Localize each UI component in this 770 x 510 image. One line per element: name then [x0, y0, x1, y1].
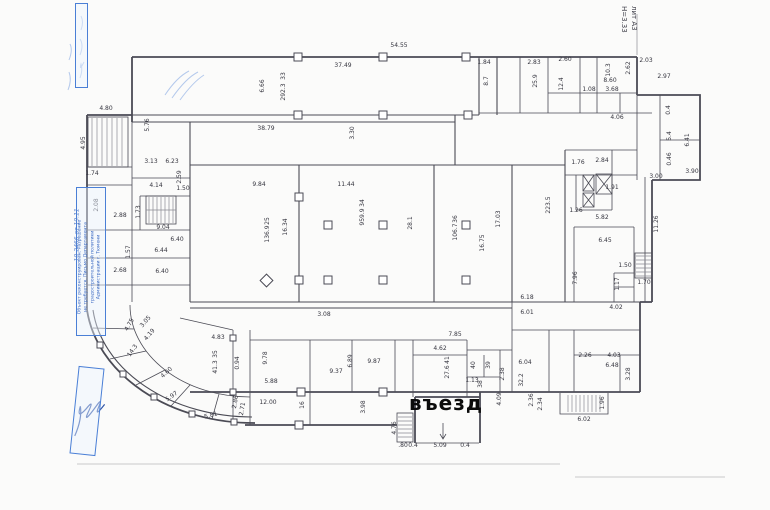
dimension-label: 12.00: [259, 400, 276, 406]
dimension-label: 6.40: [155, 269, 168, 275]
dimension-label: 1.70: [637, 280, 650, 286]
dimension-label: 1.91: [605, 185, 618, 191]
dimension-label: 4.14: [149, 183, 162, 189]
dimension-label: 1.57: [126, 245, 132, 258]
dimension-label: 4.95: [81, 136, 87, 149]
dimension-label: 0.94: [235, 356, 241, 369]
dimension-label: 11.26: [654, 215, 660, 232]
dimension-label: 4.09: [497, 392, 503, 405]
dimension-label: 3.68: [605, 87, 618, 93]
dimension-label: 2.36: [529, 393, 535, 406]
dimension-label: 6.02: [577, 417, 590, 423]
dimension-label: 8.7: [484, 76, 490, 86]
dimension-label: 2.03: [639, 58, 652, 64]
dimension-label: 2.88: [113, 213, 126, 219]
dimension-label: 17.03: [496, 210, 502, 227]
dimension-label: 5.76: [145, 118, 151, 131]
dimension-label: 0.4: [408, 443, 418, 449]
dimension-label: 4.02: [609, 305, 622, 311]
dimension-label: 38: [478, 380, 484, 388]
dimension-label: 2.97: [657, 74, 670, 80]
pen-scribble: [165, 71, 204, 100]
ramp-basement-stair: [397, 413, 413, 442]
dimension-label: 959.9: [360, 208, 366, 225]
dimension-label: 5.88: [264, 379, 277, 385]
liter-block: Н=3.33 лит А3: [620, 6, 638, 33]
dimension-label: 1.96: [600, 396, 606, 409]
staircase-central: [146, 196, 176, 224]
dimension-label: 4.80: [99, 106, 112, 112]
dimension-label: 39: [486, 361, 492, 369]
dimension-label: 6.48: [605, 363, 618, 369]
dimension-label: 6.66: [260, 79, 266, 92]
dimension-label: 1.73: [136, 205, 142, 218]
dimension-label: 5.82: [595, 215, 608, 221]
dimension-label: 9.87: [367, 359, 380, 365]
dimension-label: 3.98: [361, 400, 367, 413]
dimension-label: 3.00: [649, 174, 662, 180]
dimension-label: 1.84: [477, 60, 490, 66]
stamp-line: Администрации г. Тюмени: [97, 195, 103, 340]
dimension-label: 223.5: [546, 196, 552, 213]
dimension-label: 11.44: [337, 182, 354, 188]
dimension-label: 37.49: [334, 63, 351, 69]
dimension-label: 7.85: [448, 332, 461, 338]
dimension-label: 6.45: [598, 238, 611, 244]
dimension-label: 16: [300, 401, 306, 409]
height-label: Н=3.33: [620, 6, 628, 33]
dimension-label: 2.38: [500, 367, 506, 380]
dimension-label: 0.4: [460, 443, 470, 449]
dimension-label: 3.08: [317, 312, 330, 318]
dimension-label: 0.4: [666, 105, 672, 115]
dimension-label: 9.37: [329, 369, 342, 375]
dimension-label: 2.62: [626, 61, 632, 74]
dimension-label: 1.17: [615, 277, 621, 290]
dimension-label: 2.84: [595, 158, 608, 164]
dimension-label: 292.3: [281, 83, 287, 100]
dimension-label: 3.30: [350, 126, 356, 139]
dimension-label: 28.1: [408, 216, 414, 229]
dimension-label: .80: [398, 443, 408, 449]
dimension-label: 16.34: [283, 218, 289, 235]
dimension-label: 6.01: [520, 310, 533, 316]
dimension-label: 4.62: [433, 346, 446, 352]
dimension-label: 9.04: [156, 225, 169, 231]
entrance-label: въезд: [409, 391, 483, 415]
dimension-label: 6.41: [685, 133, 691, 146]
reconstruction-stamp-text: Объект реконструирован. Разрешение не тр…: [78, 195, 104, 340]
dimension-label: 4.03: [607, 353, 620, 359]
dimension-label: 2.59: [177, 170, 183, 183]
dimension-label: 25: [265, 217, 271, 225]
dimension-label: 32.2: [519, 373, 525, 386]
dimension-label: 1.76: [571, 160, 584, 166]
staircase-northwest: [88, 117, 128, 167]
dimension-label: 41: [445, 356, 451, 364]
dimension-label: 34: [360, 199, 366, 207]
dimension-label: 6.04: [518, 360, 531, 366]
dimension-label: 1.50: [618, 263, 631, 269]
dimension-label: 1.26: [569, 208, 582, 214]
dimension-label: 4.06: [610, 115, 623, 121]
dimension-label: 27.6: [445, 365, 451, 378]
dimension-label: 136.9: [265, 225, 271, 242]
dimension-label: 9.78: [263, 351, 269, 364]
dimension-label: 3.90: [685, 169, 698, 175]
dimension-label: 12.4: [559, 77, 565, 90]
dimension-label: 9.84: [252, 182, 265, 188]
dimension-label: 6.40: [170, 237, 183, 243]
dimension-label: 10.3: [606, 63, 612, 76]
scanned-floor-plan-page: 54.5537.496.6633292.338.793.301.848.72.8…: [0, 0, 770, 510]
dimension-label: 2.83: [527, 60, 540, 66]
dimension-label: 40: [471, 361, 477, 369]
dimension-label: 5.09: [433, 443, 446, 449]
page-edge-lines: [77, 464, 725, 477]
structural-columns: [97, 53, 472, 429]
dimension-label: 0.46: [667, 152, 673, 165]
dimension-label: 36: [453, 215, 459, 223]
dimension-label: 3.13: [144, 159, 157, 165]
dimension-label: 3.28: [626, 367, 632, 380]
dimension-label: 2.68: [113, 268, 126, 274]
dimension-label: 25.9: [533, 74, 539, 87]
floor-plan-drawing: [0, 0, 770, 510]
dimension-label: 8.60: [603, 78, 616, 84]
dimension-label: 6.23: [165, 159, 178, 165]
dimension-label: 7.96: [573, 271, 579, 284]
reconstruction-stamp: Объект реконструирован. Разрешение не тр…: [76, 187, 106, 336]
dimension-label: 54.55: [390, 43, 407, 49]
dimension-label: 1.74: [85, 171, 98, 177]
dimension-label: 1.08: [582, 87, 595, 93]
handwritten-note: 10-2466 от 19.11: [74, 202, 81, 262]
dimension-label: 6.18: [520, 295, 533, 301]
dimension-label: 33: [281, 72, 287, 80]
dimension-label: 41.3: [213, 360, 219, 373]
dimension-label: 5.4: [667, 131, 673, 141]
dimension-label: 4.76: [392, 421, 398, 434]
dimension-label: 1.50: [176, 186, 189, 192]
registration-strip-stamp: [75, 3, 88, 88]
dimension-label: 4.83: [211, 335, 224, 341]
dimension-label: 35: [213, 350, 219, 358]
liter-label: лит А3: [630, 6, 638, 33]
staircase-east: [635, 253, 652, 278]
dimension-label: 2.60: [558, 57, 571, 63]
dimension-label: 6.44: [154, 248, 167, 254]
dimension-label: 2.26: [578, 353, 591, 359]
dimension-label: 2.34: [538, 397, 544, 410]
dimension-label: 38.79: [257, 126, 274, 132]
dimension-label: 106.7: [453, 223, 459, 240]
dimension-label: 16.75: [480, 234, 486, 251]
dimension-label: 6.89: [348, 354, 354, 367]
